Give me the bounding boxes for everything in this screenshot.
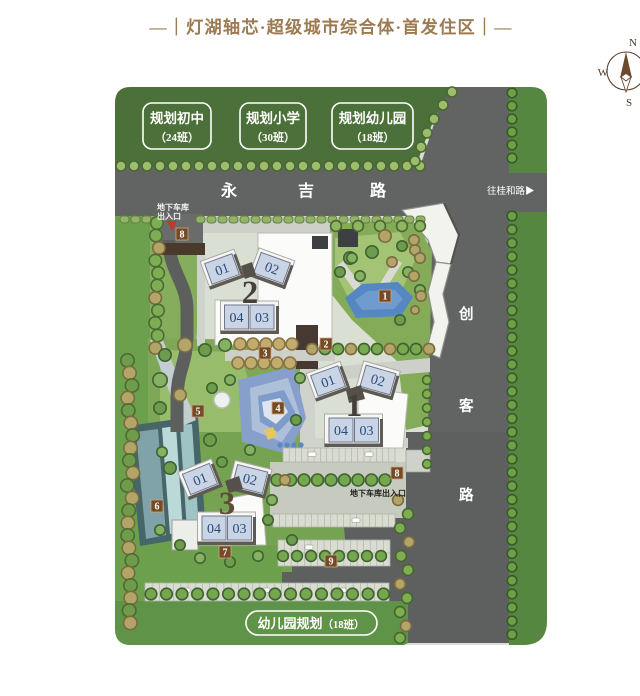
- svg-text:5: 5: [196, 407, 201, 418]
- svg-text:（30班）: （30班）: [251, 130, 295, 144]
- svg-text:9: 9: [329, 557, 334, 568]
- svg-text:S: S: [626, 97, 632, 109]
- svg-text:往桂和路▶: 往桂和路▶: [487, 185, 535, 197]
- svg-text:4: 4: [276, 404, 281, 415]
- svg-text:地下车库出入口: 地下车库出入口: [350, 488, 406, 498]
- svg-text:（24班）: （24班）: [155, 130, 199, 144]
- svg-text:规划幼儿园: 规划幼儿园: [339, 110, 407, 126]
- svg-text:—｜灯湖轴芯·超级城市综合体·首发住区｜—: —｜灯湖轴芯·超级城市综合体·首发住区｜—: [148, 17, 512, 37]
- svg-text:04: 04: [334, 424, 348, 439]
- svg-text:W: W: [598, 67, 609, 79]
- svg-text:03: 03: [255, 311, 269, 326]
- svg-text:04: 04: [207, 522, 221, 537]
- svg-text:6: 6: [155, 502, 160, 513]
- svg-text:（18班）: （18班）: [351, 130, 395, 144]
- svg-text:8: 8: [395, 469, 400, 480]
- svg-text:1: 1: [346, 388, 363, 424]
- svg-text:04: 04: [230, 311, 244, 326]
- svg-text:2: 2: [324, 340, 329, 351]
- svg-text:8: 8: [180, 230, 185, 241]
- svg-text:3: 3: [219, 486, 236, 522]
- svg-text:N: N: [629, 37, 637, 49]
- svg-text:规划小学: 规划小学: [246, 110, 300, 126]
- svg-text:规划初中: 规划初中: [150, 110, 204, 126]
- svg-text:2: 2: [242, 275, 259, 311]
- svg-text:3: 3: [263, 349, 268, 360]
- svg-text:1: 1: [383, 292, 388, 303]
- svg-text:7: 7: [223, 548, 228, 559]
- svg-text:03: 03: [233, 522, 247, 537]
- svg-text:03: 03: [360, 424, 374, 439]
